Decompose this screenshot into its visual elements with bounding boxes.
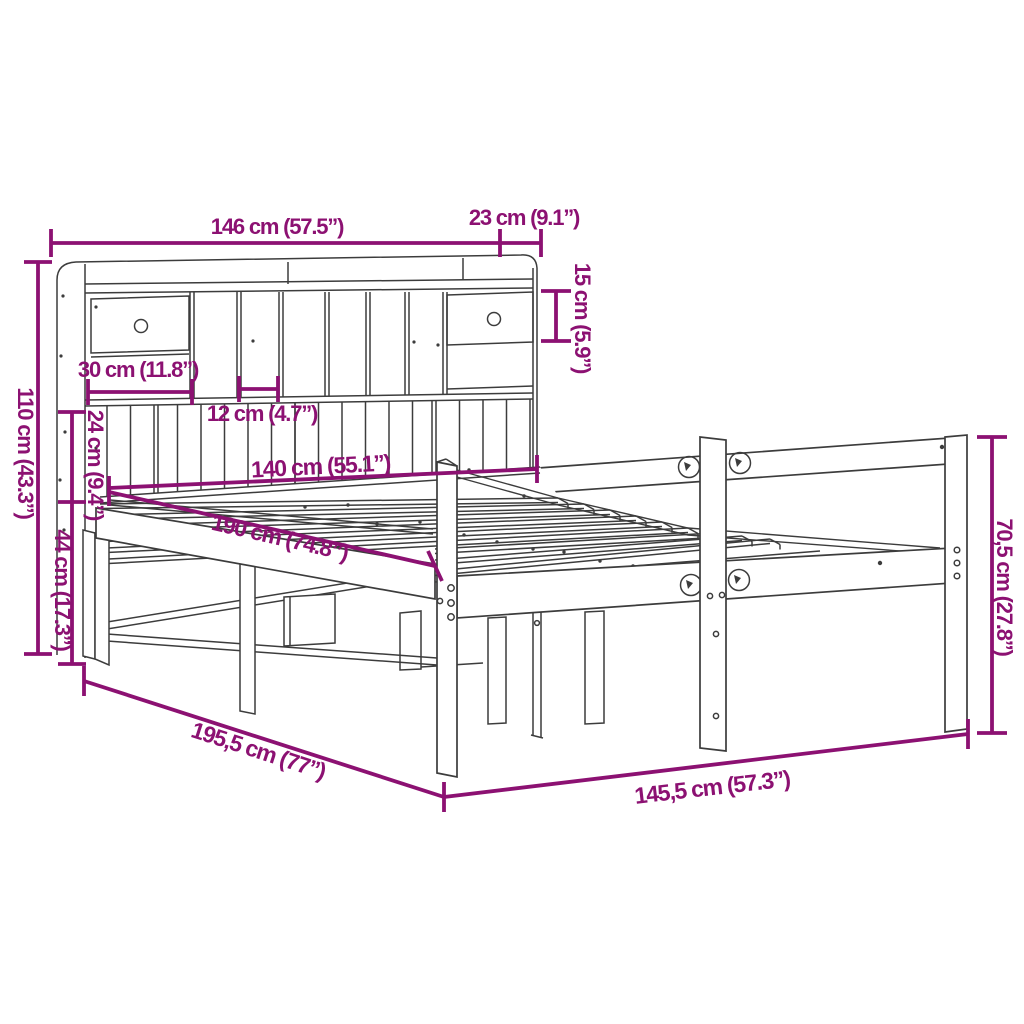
svg-text:15 cm (5.9”): 15 cm (5.9”) (570, 263, 595, 374)
svg-text:12 cm (4.7”): 12 cm (4.7”) (207, 401, 318, 426)
svg-text:70,5 cm (27.8”): 70,5 cm (27.8”) (992, 518, 1017, 656)
svg-text:23 cm (9.1”): 23 cm (9.1”) (469, 205, 580, 230)
svg-text:110 cm (43.3”): 110 cm (43.3”) (13, 387, 38, 519)
svg-text:146 cm (57.5”): 146 cm (57.5”) (211, 214, 344, 239)
svg-text:24 cm (9.4”): 24 cm (9.4”) (83, 410, 108, 521)
svg-text:30 cm (11.8”): 30 cm (11.8”) (78, 357, 199, 382)
svg-text:44 cm (17.3”): 44 cm (17.3”) (50, 529, 75, 651)
